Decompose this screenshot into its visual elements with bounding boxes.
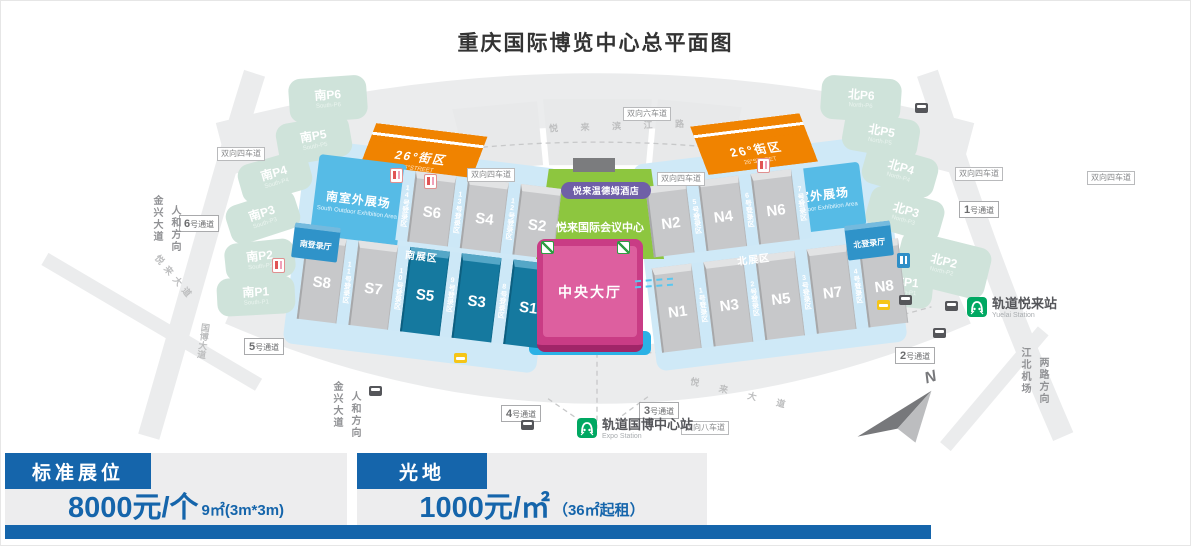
escalator-icon <box>541 241 554 254</box>
raw-space-note: （36㎡起租） <box>553 499 645 520</box>
lane-label: 双向四车道 <box>217 147 265 161</box>
restroom-icon <box>897 253 910 268</box>
gate-label: 2号通道 <box>895 347 935 364</box>
north-registration-hall: 北登录厅 <box>844 220 894 260</box>
map-title: 重庆国际博览中心总平面图 <box>1 27 1190 57</box>
bus-stop-icon <box>915 103 928 113</box>
direction-text: 金兴大道 人和方向 <box>329 381 362 447</box>
standard-booth-price: 8000元/个 <box>68 484 199 526</box>
raw-space-panel: 光地 1000元/㎡ （36㎡起租） <box>357 453 707 525</box>
central-hall-block: 中央大厅 <box>537 239 643 352</box>
taxi-icon <box>454 353 467 363</box>
lane-label: 双向六车道 <box>623 107 671 121</box>
raw-space-price: 1000元/㎡ <box>419 484 550 526</box>
expo-station-label: 轨道国博中心站 <box>602 418 693 432</box>
south-registration-hall: 南登录厅 <box>291 222 341 262</box>
yuelai-station-en: Yuelai Station <box>992 312 1057 319</box>
gate-label: 5号通道 <box>244 338 284 355</box>
gate-label: 6号通道 <box>179 215 219 232</box>
yuelai-station: 轨道悦来站 Yuelai Station <box>967 297 1057 319</box>
yuelai-station-label: 轨道悦来站 <box>992 297 1057 311</box>
roof-block <box>573 158 615 172</box>
lane-label: 双向四车道 <box>1087 171 1135 185</box>
restroom-icon <box>272 258 285 273</box>
expo-site-map: 重庆国际博览中心总平面图 南P6 South-P6 南P5 South-P5 <box>1 1 1190 451</box>
expo-station-en: Expo Station <box>602 433 693 440</box>
taxi-icon <box>877 300 890 310</box>
restroom-icon <box>757 158 770 173</box>
central-hall-label: 中央大厅 <box>558 282 622 302</box>
page: 重庆国际博览中心总平面图 南P6 South-P6 南P5 South-P5 <box>0 0 1191 546</box>
direction-text: 金兴大道 人和方向 <box>149 195 182 271</box>
bus-stop-icon <box>521 420 534 430</box>
metro-icon <box>967 297 987 317</box>
parking-lot: 南P1 South-P1 <box>216 275 296 317</box>
lane-label: 双向四车道 <box>657 172 705 186</box>
standard-booth-note: 9㎡(3m*3m) <box>202 499 285 520</box>
gate-label: 1号通道 <box>959 201 999 218</box>
bus-stop-icon <box>369 386 382 396</box>
bus-stop-icon <box>933 328 946 338</box>
restroom-icon <box>390 168 403 183</box>
escalator-icon <box>617 241 630 254</box>
metro-icon <box>577 418 597 438</box>
hotel-banner: 悦来温德姆酒店 <box>561 182 651 199</box>
restroom-icon <box>424 174 437 189</box>
lane-label: 双向四车道 <box>955 167 1003 181</box>
pricing-section: 标准展位 8000元/个 9㎡(3m*3m) 光地 1000元/㎡ （36㎡起租… <box>1 451 1190 545</box>
conference-center-label: 悦来国际会议中心 <box>536 219 664 235</box>
standard-booth-panel: 标准展位 8000元/个 9㎡(3m*3m) <box>5 453 347 525</box>
lane-label: 双向四车道 <box>467 168 515 182</box>
bus-stop-icon <box>945 301 958 311</box>
direction-text: 江北机场 两路方向 <box>1017 347 1050 413</box>
bottom-accent-bar <box>5 525 931 539</box>
bus-stop-icon <box>899 295 912 305</box>
expo-station: 轨道国博中心站 Expo Station <box>577 418 693 440</box>
